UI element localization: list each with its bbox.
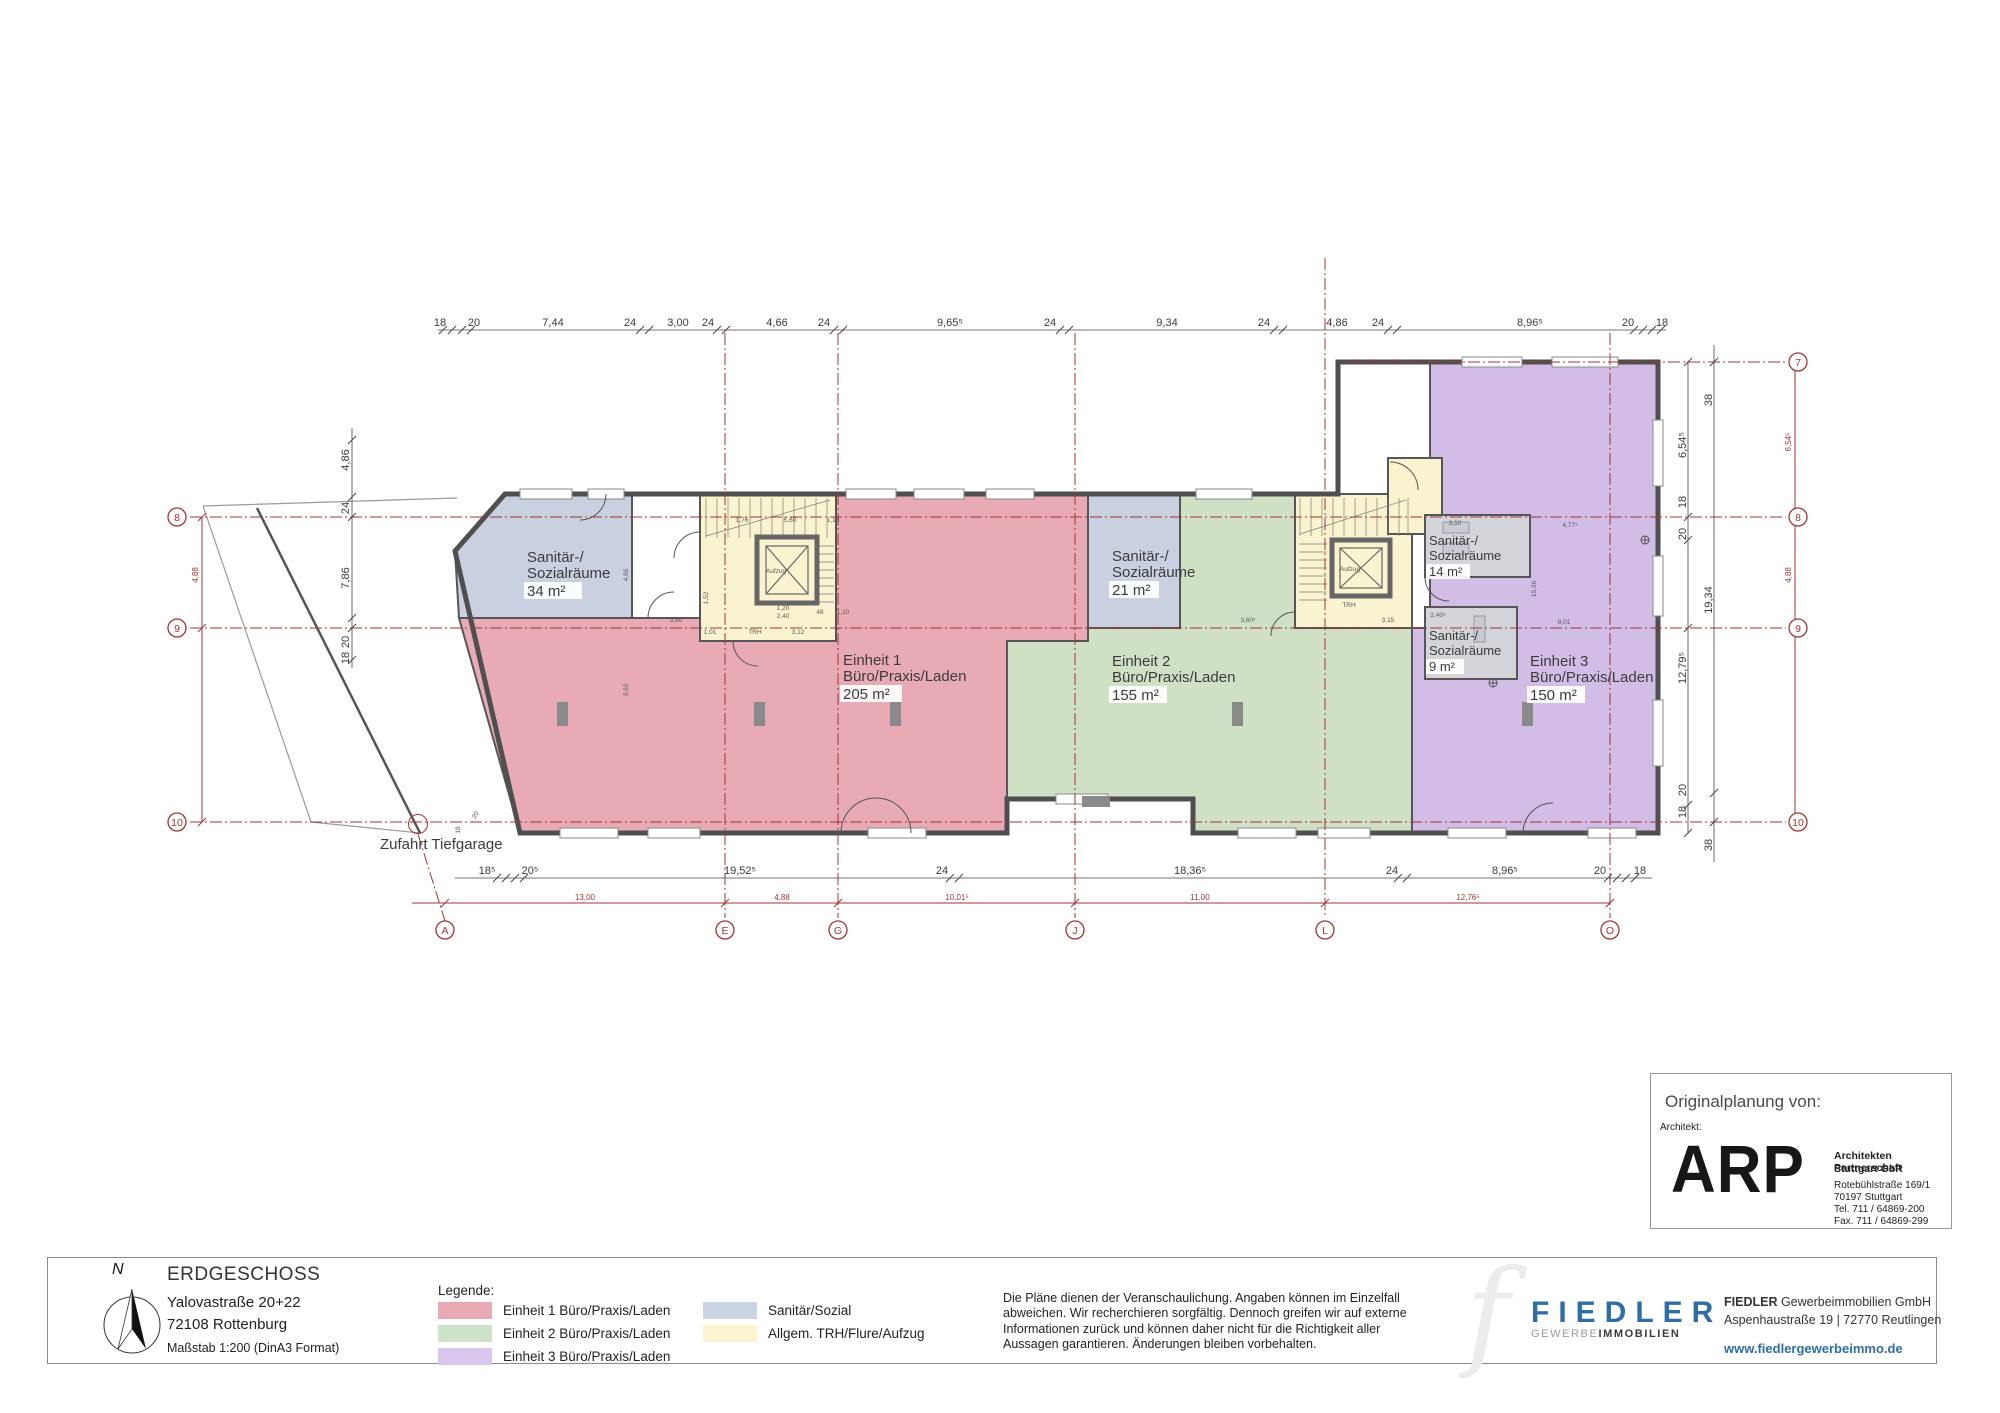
svg-text:18: 18 bbox=[1677, 806, 1689, 818]
svg-text:24: 24 bbox=[1044, 317, 1056, 329]
legend-item-einheit1: Einheit 1 Büro/Praxis/Laden bbox=[438, 1300, 670, 1320]
svg-text:38: 38 bbox=[1703, 394, 1715, 406]
svg-text:20: 20 bbox=[471, 810, 481, 820]
svg-text:20⁵: 20⁵ bbox=[522, 865, 539, 877]
svg-text:4,66: 4,66 bbox=[766, 317, 787, 329]
site-outline bbox=[203, 498, 457, 833]
svg-text:13,00: 13,00 bbox=[575, 893, 596, 902]
address-line-1: Yalovastraße 20+22 bbox=[167, 1294, 301, 1311]
svg-text:1,76: 1,76 bbox=[736, 517, 749, 524]
svg-text:Aufzug: Aufzug bbox=[766, 568, 787, 575]
legend-column-2: Sanitär/Sozial Allgem. TRH/Flure/Aufzug bbox=[703, 1300, 925, 1346]
room-unassigned bbox=[632, 494, 700, 618]
svg-text:Aufzug: Aufzug bbox=[1340, 566, 1361, 573]
svg-text:2,40⁵: 2,40⁵ bbox=[1430, 612, 1446, 619]
fiedler-sub-bold: IMMOBILIEN bbox=[1598, 1328, 1680, 1340]
bottom-dimension-labels: 18⁵20⁵19,52⁵2418,36⁵248,96⁵2018 bbox=[479, 865, 1647, 877]
label-e2-1: Einheit 2 bbox=[1112, 653, 1170, 670]
fiedler-company-bold: FIEDLER bbox=[1724, 1295, 1777, 1309]
architect-firm-line2: Stuttgart GbR bbox=[1834, 1163, 1903, 1175]
legend-label-einheit1: Einheit 1 Büro/Praxis/Laden bbox=[503, 1303, 670, 1318]
floor-plan-page: 891078910AEGJLO 18207,44243,00244,66249,… bbox=[0, 0, 2000, 1413]
svg-text:4,86: 4,86 bbox=[340, 449, 352, 470]
label-e2-area: 155 m² bbox=[1112, 687, 1159, 704]
fiedler-brand-sub: GEWERBEIMMOBILIEN bbox=[1531, 1328, 1680, 1340]
svg-text:1,10: 1,10 bbox=[837, 609, 850, 616]
legend-swatch-einheit2 bbox=[438, 1325, 492, 1342]
label-e1-2: Büro/Praxis/Laden bbox=[843, 668, 966, 685]
label-s9-area: 9 m² bbox=[1429, 659, 1456, 674]
svg-text:18: 18 bbox=[455, 826, 462, 834]
svg-text:4,77⁵: 4,77⁵ bbox=[1562, 522, 1578, 529]
label-e1-area: 205 m² bbox=[843, 686, 890, 703]
label-zufahrt: Zufahrt Tiefgarage bbox=[380, 836, 503, 853]
legend-swatch-einheit1 bbox=[438, 1302, 492, 1319]
legend-swatch-sanitaer bbox=[703, 1302, 757, 1319]
page-title: ERDGESCHOSS bbox=[167, 1264, 320, 1286]
label-s21-2: Sozialräume bbox=[1112, 564, 1195, 581]
svg-text:20: 20 bbox=[1622, 317, 1634, 329]
label-e1-1: Einheit 1 bbox=[843, 652, 901, 669]
svg-text:A: A bbox=[441, 925, 448, 937]
svg-text:38: 38 bbox=[1703, 839, 1715, 851]
label-s21-1: Sanitär-/ bbox=[1112, 548, 1170, 565]
svg-text:L: L bbox=[1322, 925, 1328, 937]
address-line-2: 72108 Rottenburg bbox=[167, 1316, 287, 1333]
svg-text:19,34: 19,34 bbox=[1703, 586, 1715, 614]
svg-text:24: 24 bbox=[818, 317, 830, 329]
svg-text:7,86: 7,86 bbox=[340, 567, 352, 588]
svg-text:4,86: 4,86 bbox=[623, 568, 630, 581]
svg-text:4,88: 4,88 bbox=[191, 567, 200, 583]
svg-text:24: 24 bbox=[1372, 317, 1384, 329]
svg-text:1,01: 1,01 bbox=[704, 629, 717, 636]
svg-text:18: 18 bbox=[340, 652, 352, 664]
svg-text:18,36⁵: 18,36⁵ bbox=[1174, 865, 1206, 877]
svg-text:24: 24 bbox=[624, 317, 636, 329]
svg-text:3,62: 3,62 bbox=[623, 683, 630, 696]
svg-text:9: 9 bbox=[1795, 623, 1801, 635]
fiedler-website-link[interactable]: www.fiedlergewerbeimmo.de bbox=[1724, 1341, 1903, 1356]
svg-text:15,36: 15,36 bbox=[1531, 580, 1538, 597]
svg-text:24: 24 bbox=[1258, 317, 1270, 329]
svg-text:10,01⁵: 10,01⁵ bbox=[945, 893, 968, 902]
svg-text:TRH: TRH bbox=[748, 629, 762, 636]
zone-fills bbox=[455, 362, 1658, 833]
svg-text:18: 18 bbox=[1656, 317, 1668, 329]
label-s34-1: Sanitär-/ bbox=[527, 549, 585, 566]
fiedler-company-rest: Gewerbeimmobilien GmbH bbox=[1777, 1295, 1931, 1309]
fiedler-f-icon: f bbox=[1466, 1254, 1510, 1372]
svg-text:24: 24 bbox=[702, 317, 714, 329]
legend-item-trh: Allgem. TRH/Flure/Aufzug bbox=[703, 1323, 925, 1343]
label-e3-area: 150 m² bbox=[1530, 687, 1577, 704]
svg-text:1,52: 1,52 bbox=[703, 591, 710, 604]
svg-text:3,60⁵: 3,60⁵ bbox=[1240, 617, 1256, 624]
svg-text:18⁵: 18⁵ bbox=[479, 865, 496, 877]
svg-text:11,00: 11,00 bbox=[1190, 893, 1210, 902]
title-block: N ERDGESCHOSS Yalovastraße 20+22 72108 R… bbox=[47, 1257, 1937, 1364]
architect-address2: 70197 Stuttgart bbox=[1834, 1192, 1902, 1204]
disclaimer-text: Die Pläne dienen der Veranschaulichung. … bbox=[1003, 1291, 1427, 1352]
fiedler-brand: FIEDLER bbox=[1531, 1296, 1722, 1330]
label-s34-2: Sozialräume bbox=[527, 565, 610, 582]
svg-text:1,20: 1,20 bbox=[777, 605, 790, 612]
label-e3-2: Büro/Praxis/Laden bbox=[1530, 669, 1653, 686]
fiedler-address: Aspenhaustraße 19 | 72770 Reutlingen bbox=[1724, 1313, 1941, 1327]
fiedler-company-line: FIEDLER Gewerbeimmobilien GmbH bbox=[1724, 1295, 1931, 1309]
svg-text:8: 8 bbox=[1795, 512, 1801, 524]
svg-text:5,60: 5,60 bbox=[784, 517, 797, 524]
svg-text:8: 8 bbox=[174, 512, 180, 524]
svg-text:20: 20 bbox=[1594, 865, 1606, 877]
label-s34-area: 34 m² bbox=[527, 583, 565, 600]
svg-text:12,79⁵: 12,79⁵ bbox=[1677, 652, 1689, 684]
svg-text:8,01: 8,01 bbox=[1558, 619, 1571, 626]
svg-text:G: G bbox=[834, 925, 842, 937]
svg-text:O: O bbox=[1606, 925, 1614, 937]
svg-text:10: 10 bbox=[1792, 817, 1804, 829]
red-dimension-labels: 13,004,8810,01⁵11,0012,76⁵ bbox=[575, 893, 1480, 902]
legend-swatch-einheit3 bbox=[438, 1348, 492, 1365]
label-e3-1: Einheit 3 bbox=[1530, 653, 1588, 670]
svg-text:3,80: 3,80 bbox=[670, 617, 683, 624]
svg-text:20: 20 bbox=[340, 636, 352, 648]
svg-text:3,00: 3,00 bbox=[667, 317, 688, 329]
label-s21-area: 21 m² bbox=[1112, 582, 1150, 599]
label-s14-1: Sanitär-/ bbox=[1429, 533, 1479, 548]
svg-text:3,10: 3,10 bbox=[1449, 520, 1462, 527]
legend-label-einheit3: Einheit 3 Büro/Praxis/Laden bbox=[503, 1349, 670, 1364]
svg-text:20: 20 bbox=[468, 317, 480, 329]
legend-label-sanitaer: Sanitär/Sozial bbox=[768, 1303, 851, 1318]
legend-title: Legende: bbox=[438, 1283, 494, 1298]
svg-text:9: 9 bbox=[174, 623, 180, 635]
legend-item-einheit2: Einheit 2 Büro/Praxis/Laden bbox=[438, 1323, 670, 1343]
architect-fax: Fax. 711 / 64869-299 bbox=[1834, 1216, 1928, 1228]
architect-box: Originalplanung von: Architekt: ARP Arch… bbox=[1650, 1073, 1952, 1229]
svg-text:8,96⁵: 8,96⁵ bbox=[1517, 317, 1543, 329]
architect-address1: Rotebühlstraße 169/1 bbox=[1834, 1180, 1930, 1192]
svg-text:4,86: 4,86 bbox=[1326, 317, 1347, 329]
svg-text:24: 24 bbox=[936, 865, 948, 877]
svg-text:4,88: 4,88 bbox=[774, 893, 790, 902]
svg-text:9,65⁵: 9,65⁵ bbox=[937, 317, 963, 329]
svg-text:E: E bbox=[721, 925, 728, 937]
label-s9-2: Sozialräume bbox=[1429, 643, 1501, 658]
svg-text:9,34: 9,34 bbox=[1156, 317, 1177, 329]
legend-swatch-trh bbox=[703, 1325, 757, 1342]
svg-text:2,40: 2,40 bbox=[777, 613, 790, 620]
svg-text:8,96⁵: 8,96⁵ bbox=[1492, 865, 1518, 877]
legend-item-einheit3: Einheit 3 Büro/Praxis/Laden bbox=[438, 1346, 670, 1366]
north-label: N bbox=[112, 1261, 124, 1279]
svg-text:TRH: TRH bbox=[1342, 602, 1356, 609]
architect-subheading: Architekt: bbox=[1660, 1122, 1702, 1133]
arp-logo: ARP bbox=[1671, 1137, 1805, 1204]
svg-text:18: 18 bbox=[1677, 496, 1689, 508]
svg-text:24: 24 bbox=[1386, 865, 1398, 877]
architect-heading: Originalplanung von: bbox=[1665, 1092, 1821, 1112]
label-s9-1: Sanitär-/ bbox=[1429, 628, 1479, 643]
svg-text:6,54⁵: 6,54⁵ bbox=[1784, 433, 1793, 452]
svg-text:19,52⁵: 19,52⁵ bbox=[724, 865, 756, 877]
label-e2-2: Büro/Praxis/Laden bbox=[1112, 669, 1235, 686]
svg-text:20: 20 bbox=[1677, 528, 1689, 540]
top-dimension-labels: 18207,44243,00244,66249,65⁵249,34244,862… bbox=[434, 317, 1668, 329]
fiedler-sub-light: GEWERBE bbox=[1531, 1328, 1598, 1340]
label-s14-2: Sozialräume bbox=[1429, 548, 1501, 563]
svg-text:18: 18 bbox=[434, 317, 446, 329]
svg-text:12,76⁵: 12,76⁵ bbox=[1456, 893, 1479, 902]
label-s14-area: 14 m² bbox=[1429, 564, 1463, 579]
svg-text:J: J bbox=[1072, 925, 1077, 937]
svg-text:3,12: 3,12 bbox=[792, 629, 805, 636]
svg-text:4,88: 4,88 bbox=[1784, 567, 1793, 583]
legend-label-einheit2: Einheit 2 Büro/Praxis/Laden bbox=[503, 1326, 670, 1341]
svg-text:1,10: 1,10 bbox=[827, 517, 840, 524]
svg-text:7: 7 bbox=[1795, 357, 1801, 369]
svg-text:18: 18 bbox=[1634, 865, 1646, 877]
architect-tel: Tel. 711 / 64869-200 bbox=[1834, 1204, 1924, 1216]
scale-note: Maßstab 1:200 (DinA3 Format) bbox=[167, 1341, 339, 1355]
legend-column-1: Einheit 1 Büro/Praxis/Laden Einheit 2 Bü… bbox=[438, 1300, 670, 1369]
svg-text:3,15: 3,15 bbox=[1382, 617, 1395, 624]
svg-text:24: 24 bbox=[340, 502, 352, 514]
legend-item-sanitaer: Sanitär/Sozial bbox=[703, 1300, 925, 1320]
legend-label-trh: Allgem. TRH/Flure/Aufzug bbox=[768, 1326, 925, 1341]
svg-text:6,54⁵: 6,54⁵ bbox=[1677, 432, 1689, 458]
svg-text:7,44: 7,44 bbox=[542, 317, 563, 329]
svg-text:48: 48 bbox=[816, 609, 824, 616]
svg-text:20: 20 bbox=[1677, 784, 1689, 796]
svg-text:10: 10 bbox=[171, 817, 183, 829]
